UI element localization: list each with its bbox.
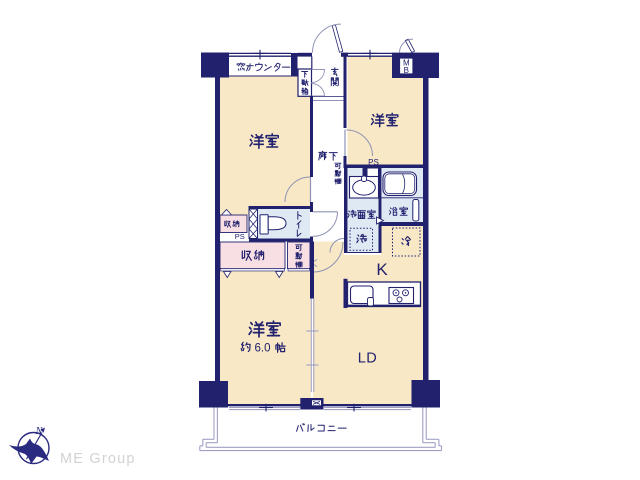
svg-text:N: N [35, 426, 44, 437]
svg-text:PS: PS [235, 232, 245, 241]
svg-text:ME Group: ME Group [60, 451, 136, 467]
svg-text:K: K [376, 260, 388, 279]
svg-text:PS: PS [368, 158, 379, 167]
svg-text:6.0: 6.0 [255, 343, 271, 355]
svg-text:LD: LD [358, 350, 378, 366]
svg-text:B: B [404, 66, 409, 75]
